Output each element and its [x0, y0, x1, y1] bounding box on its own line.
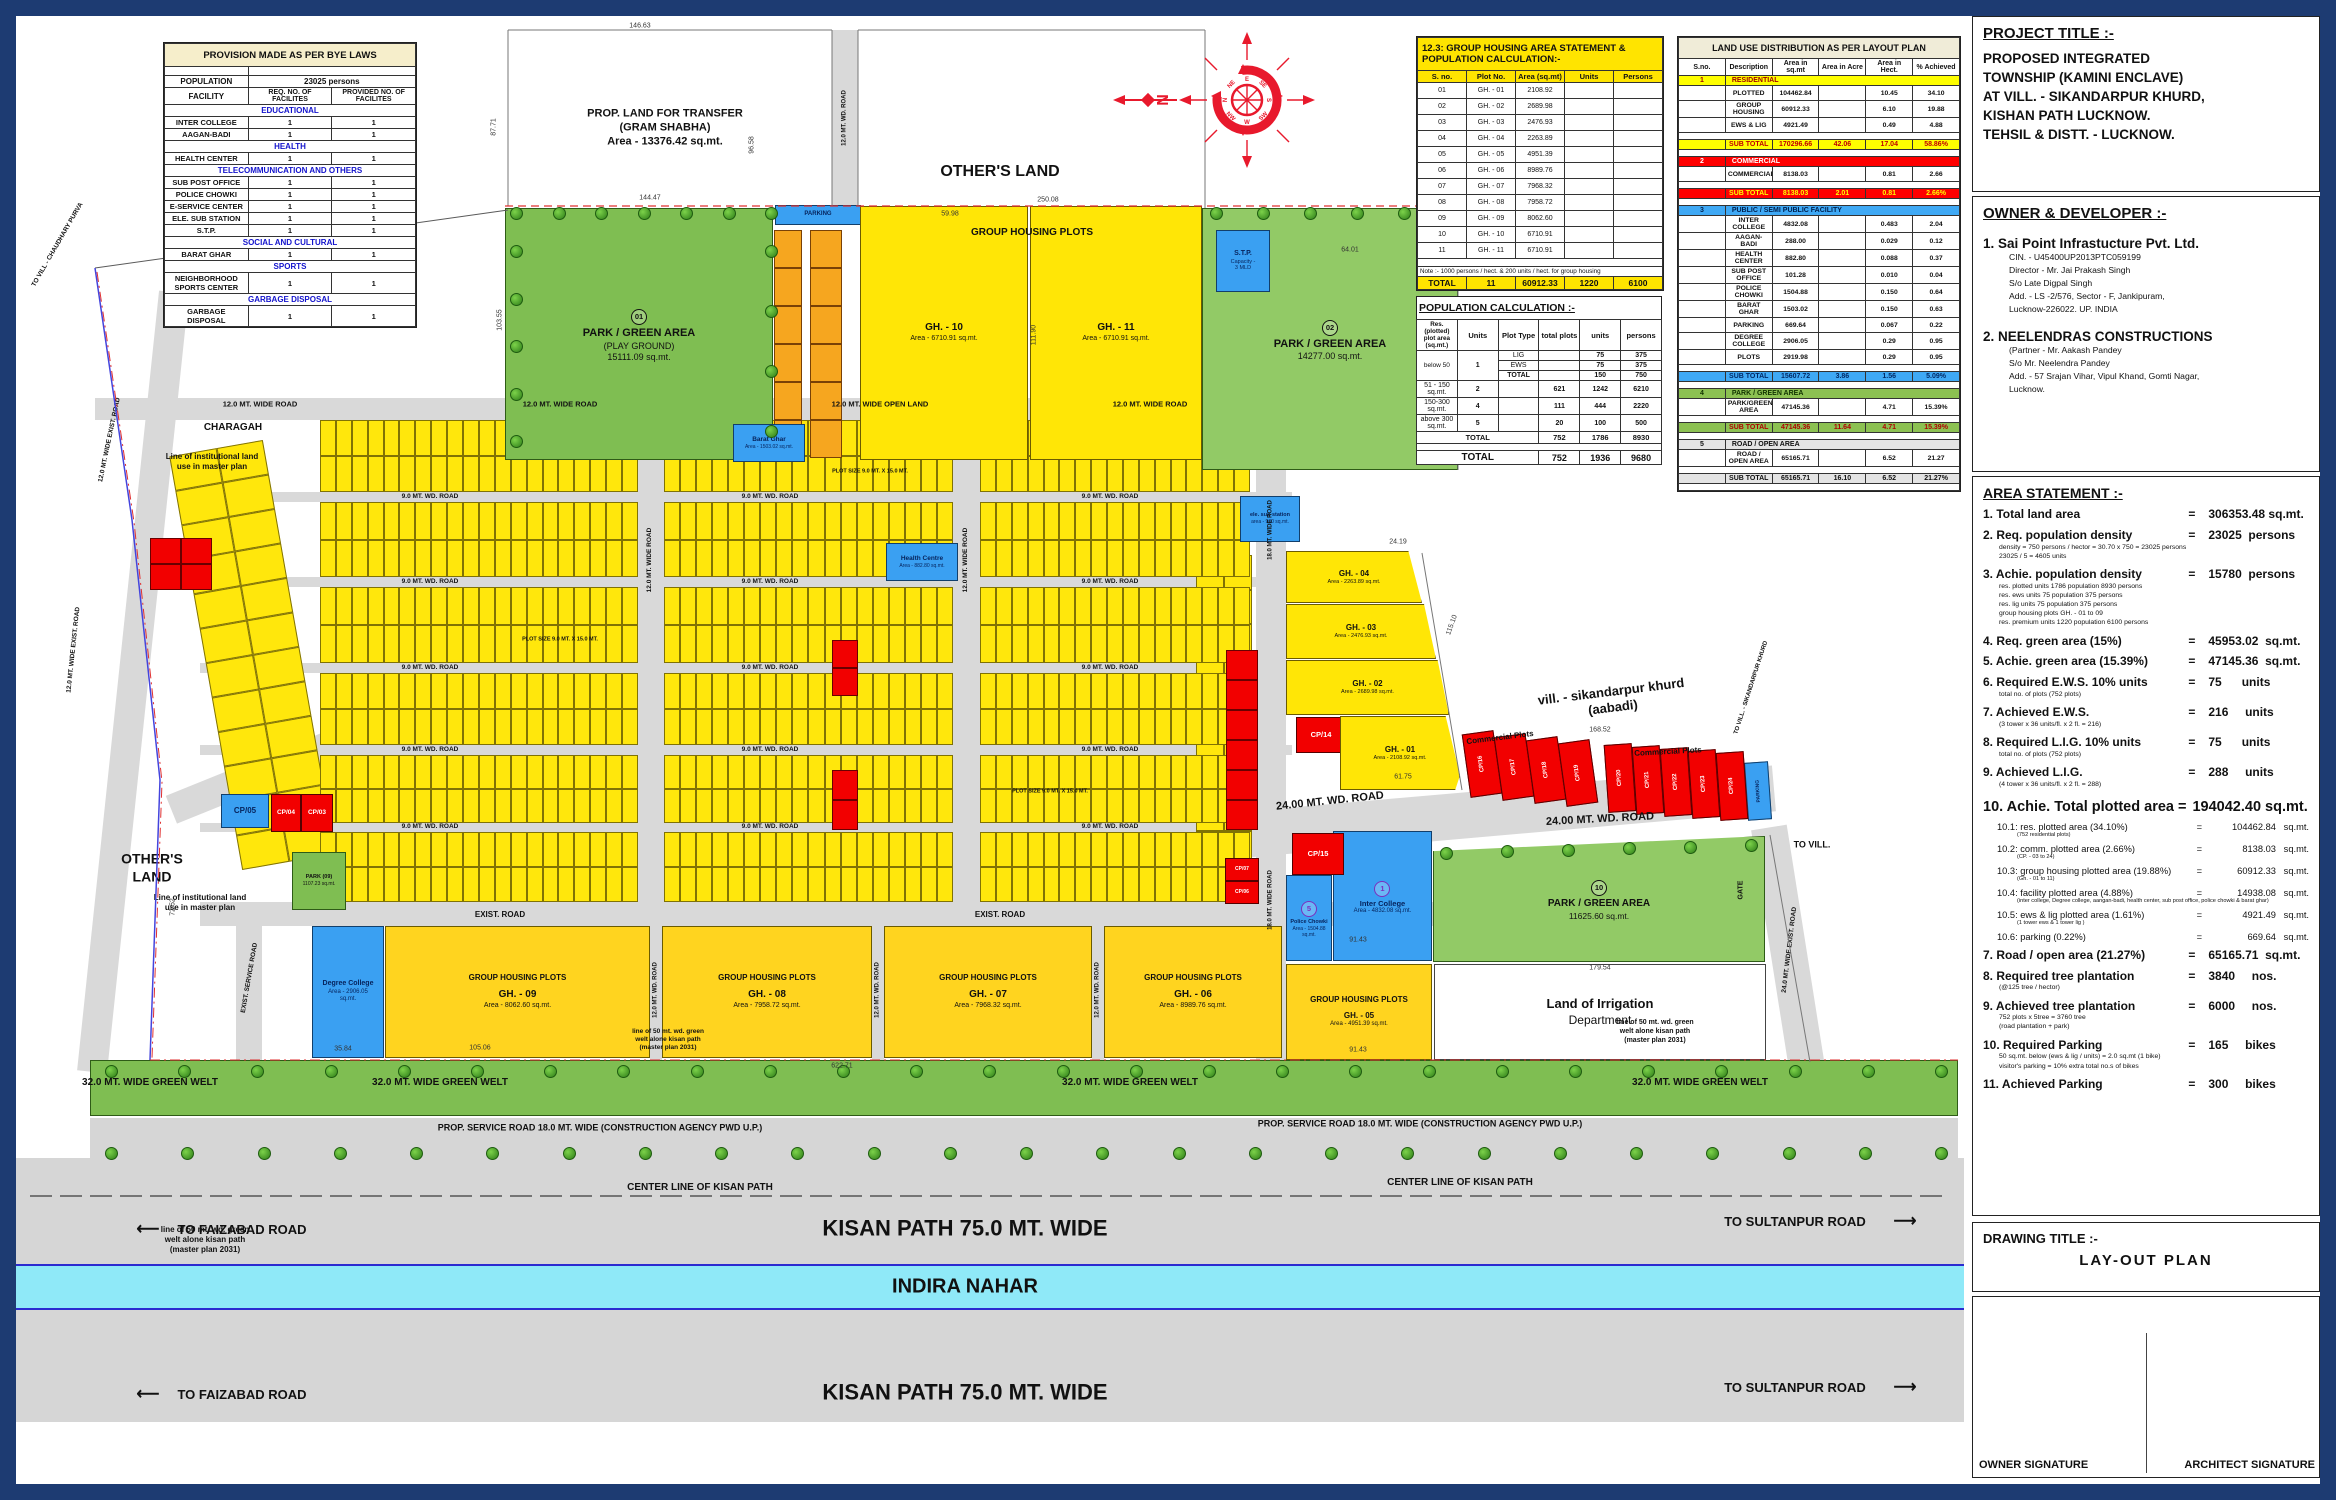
area-item-label: 5. Achie. green area (15.39%) [1983, 655, 2188, 669]
dimension-label: 96.58 [749, 136, 756, 154]
plot-cell [1123, 832, 1139, 867]
table-row: POLICE CHOWKI1504.880.1500.64 [1679, 284, 1960, 301]
owner-signature-label: OWNER SIGNATURE [1979, 1459, 2088, 1471]
tree-icon [334, 1147, 347, 1160]
table-row [1679, 382, 1960, 389]
plot-cell [696, 502, 712, 540]
table-cell: GH. - 09 [1467, 211, 1516, 227]
plot-cell [1012, 502, 1028, 540]
table-cell: 0.150 [1866, 301, 1913, 318]
inter-college: 1Inter CollegeArea - 4832.08 sq.mt. [1333, 831, 1432, 961]
plot-cp05: CP/05 [221, 794, 269, 828]
plot-cell [558, 625, 574, 663]
table-cell [1679, 467, 1960, 474]
area-item-main: 10. Achie. Total plotted area =194042.40… [1983, 799, 2309, 816]
plot-cell [857, 673, 873, 709]
map-label: KISAN PATH 75.0 MT. WIDE [822, 1214, 1107, 1242]
area-sub-eq: = [2197, 910, 2209, 920]
plot-cell [1139, 540, 1155, 578]
table-cell: 150-300 sq.mt. [1417, 398, 1458, 415]
table-row: PARK/GREEN AREA47145.364.7115.39% [1679, 399, 1960, 416]
plot-cell [399, 540, 415, 578]
plot-cell [236, 827, 289, 870]
plot-cell [590, 755, 606, 789]
plot-cell [495, 867, 511, 902]
plot-cell [447, 420, 463, 456]
table-cell: Res. (plotted) plot area (sq.mt.) [1417, 320, 1458, 351]
table-cell: 4 [1457, 398, 1498, 415]
dimension-label: 61.75 [1394, 774, 1412, 781]
table-cell [1614, 211, 1663, 227]
plot-cell [622, 789, 638, 823]
plot-cell [1028, 587, 1044, 625]
map-label: ⟶ [1894, 1212, 1917, 1232]
table-cell: 1 [248, 117, 332, 129]
table-cell: SUB TOTAL [1725, 140, 1772, 150]
map-label: ⟶ [1894, 1378, 1917, 1398]
table-cell [1819, 318, 1866, 333]
plot-cell [352, 420, 368, 456]
table-cell: Description [1725, 59, 1772, 76]
area-sub-main: 10.4: facility plotted area (4.88%)=1493… [1997, 888, 2309, 898]
plot-cell [1044, 540, 1060, 578]
table-cell: COMMERCIAL [1725, 167, 1772, 182]
table-row: 150-300 sq.mt.41114442220 [1417, 398, 1662, 415]
plot-cell [431, 502, 447, 540]
provision-table: PROVISION MADE AS PER BYE LAWSPOPULATION… [163, 42, 417, 328]
plot-cell [431, 540, 447, 578]
plot-cell [447, 673, 463, 709]
plot-cell [728, 867, 744, 902]
table-row: 12.3: GROUP HOUSING AREA STATEMENT & POP… [1418, 38, 1663, 71]
plot-cell [810, 268, 842, 306]
area-item-main: 9. Achieved tree plantation=6000 nos. [1983, 1000, 2309, 1014]
table-cell [1614, 163, 1663, 179]
tree-icon [638, 207, 651, 220]
area-item-main: 7. Achieved E.W.S.=216 units [1983, 706, 2309, 720]
plot-cell [889, 709, 905, 745]
table-row: BARAT GHAR11 [165, 249, 416, 261]
parking-strip: PARKING [775, 205, 861, 225]
block-title: CP/24 [1728, 777, 1737, 794]
plot-cell [1171, 673, 1187, 709]
plot-cell [399, 456, 415, 492]
plot-cell [1091, 502, 1107, 540]
table-row: SUB TOTAL170296.6642.0617.0458.86% [1679, 140, 1960, 150]
plot-cell [463, 709, 479, 745]
map-label: INDIRA NAHAR [892, 1275, 1038, 1300]
plot-cell [825, 709, 841, 745]
plot-cell [415, 456, 431, 492]
table-row: HEALTH CENTER11 [165, 153, 416, 165]
plot-cell [415, 625, 431, 663]
plot-cp14: CP/14 [1296, 717, 1346, 753]
map-label: EXIST. ROAD [975, 910, 1025, 920]
plot-cell [495, 789, 511, 823]
plot-cell [352, 502, 368, 540]
plot-cell [368, 456, 384, 492]
table-row: 1RESIDENTIAL [1679, 76, 1960, 86]
plot-cell [527, 673, 543, 709]
table-cell: 42.06 [1819, 140, 1866, 150]
area-sub-note: (752 residential plots) [2017, 832, 2309, 838]
plot-cell [558, 755, 574, 789]
plot-cell [543, 709, 559, 745]
plot-cell [889, 789, 905, 823]
block-title: GH. - 02 [1341, 679, 1394, 689]
plot-cell [1202, 502, 1218, 540]
dimension-label: 179.54 [1589, 965, 1610, 972]
tree-icon [765, 245, 778, 258]
plot-cell [368, 625, 384, 663]
plot-cell [384, 867, 400, 902]
plot-cp07: CP/07 [1225, 858, 1259, 881]
table-cell: NEIGHBORHOOD SPORTS CENTER [165, 273, 249, 294]
plot-cell [415, 502, 431, 540]
map-block-label: Barat GharArea - 1503.02 sq.mt. [745, 436, 793, 450]
table-cell: 1 [1679, 76, 1726, 86]
plot-cell [368, 540, 384, 578]
plot-cell [1139, 755, 1155, 789]
plot-cell [384, 502, 400, 540]
plot-cell [1202, 587, 1218, 625]
plot-cell [1155, 587, 1171, 625]
table-cell: 1220 [1565, 277, 1614, 290]
plot-cell [996, 755, 1012, 789]
plot-cell [574, 540, 590, 578]
plot-cell [558, 587, 574, 625]
map-label: 32.0 MT. WIDE GREEN WELT [1062, 1077, 1198, 1090]
table-cell: 500 [1621, 415, 1662, 432]
plot-cell [1171, 832, 1187, 867]
plot-cell [1139, 867, 1155, 902]
table-cell: 2108.92 [1516, 83, 1565, 99]
plot-cell [996, 456, 1012, 492]
table-cell: 09 [1418, 211, 1467, 227]
plot-cell [937, 673, 953, 709]
table-cell: 12.3: GROUP HOUSING AREA STATEMENT & POP… [1418, 38, 1663, 71]
gh-10: GH. - 10Area - 6710.91 sq.mt. [860, 206, 1028, 460]
table-cell: SPORTS [165, 261, 416, 273]
plot-cell [696, 709, 712, 745]
area-item-eq: = [2188, 1000, 2202, 1014]
table-cell: 8989.76 [1516, 163, 1565, 179]
plot-cell [680, 625, 696, 663]
plot-cell [1234, 540, 1250, 578]
block-title: CP/20 [1616, 769, 1625, 786]
tree-icon [639, 1147, 652, 1160]
table-cell: Units [1457, 320, 1498, 351]
map-label: Line of institutional land use in master… [166, 452, 258, 472]
plot-cell [384, 789, 400, 823]
gh-03: GH. - 03Area - 2476.93 sq.mt. [1286, 604, 1436, 659]
owner-firm-line: Lucknow-226022. UP. INDIA [2009, 303, 2309, 316]
plot-band [320, 502, 638, 577]
map-label: 9.0 MT. WD. ROAD [742, 664, 799, 672]
map-block-label: CP/06 [1235, 889, 1249, 895]
area-sub-label: 10.3: group housing plotted area (19.88%… [1997, 866, 2197, 876]
table-cell [1819, 284, 1866, 301]
table-cell: 47145.36 [1772, 423, 1819, 433]
table-cell: 17.04 [1866, 140, 1913, 150]
dimension-label: 72.52 [170, 898, 177, 916]
plot-cell [905, 789, 921, 823]
area-item-label: 8. Required L.I.G. 10% units [1983, 736, 2188, 750]
table-cell: 0.22 [1913, 318, 1960, 333]
table-cell: 1 [332, 177, 416, 189]
plot-cell [558, 867, 574, 902]
table-cell: 6710.91 [1516, 227, 1565, 243]
table-row: SUB TOTAL15607.723.861.565.09% [1679, 372, 1960, 382]
area-item-label: 1. Total land area [1983, 508, 2188, 522]
table-cell: FACILITY [165, 88, 249, 105]
area-statement-item: 4. Req. green area (15%)=45953.02 sq.mt. [1983, 635, 2309, 649]
plot-cell [543, 755, 559, 789]
area-item-label: 9. Achieved L.I.G. [1983, 766, 2188, 780]
table-cell: 0.067 [1866, 318, 1913, 333]
area-sub-label: 10.1: res. plotted area (34.10%) [1997, 822, 2197, 832]
table-cell: SOCIAL AND CULTURAL [165, 237, 416, 249]
tree-icon [325, 1065, 338, 1078]
map-label: 12.0 MT. WIDE OPEN LAND [832, 399, 929, 408]
area-sub-value: 60912.33 sq.mt. [2209, 866, 2309, 876]
plot-cell [447, 456, 463, 492]
plot-cell [1226, 650, 1258, 680]
table-cell: COMMERCIAL [1725, 157, 1959, 167]
plot-band [1226, 650, 1258, 830]
table-row: 04GH. - 042263.89 [1418, 131, 1663, 147]
block-title: CP/21 [1644, 771, 1653, 788]
plot-cell [463, 755, 479, 789]
map-label: CENTER LINE OF KISAN PATH [1387, 1177, 1533, 1190]
table-cell: 101.28 [1772, 267, 1819, 284]
table-cell: 8138.03 [1772, 167, 1819, 182]
plot-cell [996, 587, 1012, 625]
plot-cell [1059, 540, 1075, 578]
table-cell [1679, 250, 1726, 267]
dimension-label: 103.55 [497, 309, 504, 330]
plot-cell [857, 502, 873, 540]
map-block-label: GROUP HOUSING PLOTSGH. - 07Area - 7968.3… [939, 973, 1037, 1010]
table-cell: 1 [332, 201, 416, 213]
table-cell: 2.66 [1913, 167, 1960, 182]
table-cell: 1786 [1580, 432, 1621, 444]
area-statement-item: 3. Achie. population density=15780 perso… [1983, 568, 2309, 628]
area-item-main: 8. Required L.I.G. 10% units=75 units [1983, 736, 2309, 750]
plot-cell [1091, 789, 1107, 823]
plot-cell [712, 625, 728, 663]
table-cell: HEALTH [165, 141, 416, 153]
plot-cell [712, 540, 728, 578]
table-cell: 2220 [1621, 398, 1662, 415]
plot-cell [857, 755, 873, 789]
table-cell: GH. - 11 [1467, 243, 1516, 259]
table-cell [1679, 365, 1960, 372]
plot-band [832, 640, 858, 696]
block-title: GH. - 11 [1082, 322, 1149, 335]
table-row [1679, 433, 1960, 440]
block-title: Police Chowki [1290, 919, 1327, 926]
block-subtitle: (PLAY GROUND) [583, 341, 695, 352]
plot-cell [808, 625, 824, 663]
plot-cell [415, 867, 431, 902]
plot-cell [1107, 587, 1123, 625]
plot-cell [889, 832, 905, 867]
area-item-main: 4. Req. green area (15%)=45953.02 sq.mt. [1983, 635, 2309, 649]
plot-cell [495, 540, 511, 578]
block-title: GH. - 08 [718, 989, 816, 1002]
table-cell [1614, 147, 1663, 163]
plot-cell [368, 867, 384, 902]
area-item-value: 23025 persons [2208, 529, 2295, 543]
plot-band [664, 587, 953, 663]
table-cell: 0.483 [1866, 216, 1913, 233]
table-cell: % Achieved [1913, 59, 1960, 76]
plot-cell [495, 456, 511, 492]
tree-icon [1210, 207, 1223, 220]
map-block-label: CP/14 [1311, 730, 1332, 739]
map-label: GROUP HOUSING PLOTS [971, 227, 1093, 240]
plot-cell [543, 540, 559, 578]
table-cell: 03 [1418, 115, 1467, 131]
plot-cell [664, 502, 680, 540]
map-label: PLOT SIZE 9.0 MT. X 15.0 MT. [522, 637, 598, 644]
project-title-line: PROPOSED INTEGRATED [1983, 50, 2309, 69]
plot-cell [857, 587, 873, 625]
map-block-label: CP/24 [1728, 777, 1737, 794]
table-cell: Note :- 1000 persons / hect. & 200 units… [1418, 267, 1663, 277]
plot-cell [511, 625, 527, 663]
map-block-label: CP/17 [1509, 758, 1519, 776]
table-cell: 0.12 [1913, 233, 1960, 250]
map-label: 12.0 MT. WIDE ROAD [223, 399, 298, 408]
table-cell: 6.10 [1866, 101, 1913, 118]
plot-cell [1186, 456, 1202, 492]
plot-cell [463, 789, 479, 823]
plot-cell [712, 832, 728, 867]
park-play-ground: 01PARK / GREEN AREA(PLAY GROUND)15111.09… [505, 208, 773, 460]
plot-cell [352, 867, 368, 902]
table-cell: 4.71 [1866, 399, 1913, 416]
table-cell: 1 [332, 225, 416, 237]
plot-cell [760, 789, 776, 823]
plot-cell [1044, 456, 1060, 492]
block-overtitle: GROUP HOUSING PLOTS [1144, 973, 1242, 983]
table-cell: 11 [1467, 277, 1516, 290]
table-cell: 0.81 [1866, 167, 1913, 182]
dimension-label: 168.52 [1589, 727, 1610, 734]
table-cell [1819, 267, 1866, 284]
table-cell: 4832.08 [1772, 216, 1819, 233]
plot-cell [1091, 709, 1107, 745]
plot-cell [622, 456, 638, 492]
dimension-label: 144.47 [639, 195, 660, 202]
plot-cell [1075, 755, 1091, 789]
map-label: TO VILL. [1794, 839, 1831, 850]
plot-cell [320, 456, 336, 492]
block-title: PARK / GREEN AREA [1548, 898, 1650, 911]
tree-icon [1203, 1065, 1216, 1078]
plot-cell [320, 673, 336, 709]
drawing-title-block: DRAWING TITLE :- LAY-OUT PLAN [1972, 1222, 2320, 1292]
plot-cell [368, 789, 384, 823]
plot-cell [1123, 502, 1139, 540]
table-cell [1498, 398, 1539, 415]
plot-cell [1123, 709, 1139, 745]
map-label: GATE [1738, 881, 1747, 900]
plot-cell [889, 625, 905, 663]
area-sub-label: 10.2: comm. plotted area (2.66%) [1997, 844, 2197, 854]
gh-02: GH. - 02Area - 2689.98 sq.mt. [1286, 660, 1449, 715]
plot-cell [543, 456, 559, 492]
plot-cell [712, 456, 728, 492]
map-label: PROP. SERVICE ROAD 18.0 MT. WIDE (CONSTR… [438, 1122, 763, 1133]
table-cell: 1 [1457, 351, 1498, 381]
plot-cell [776, 502, 792, 540]
plot-cell [1091, 673, 1107, 709]
table-cell: 1 [248, 129, 332, 141]
plot-cell [511, 502, 527, 540]
table-row [1679, 182, 1960, 189]
table-cell: GROUP HOUSING [1725, 101, 1772, 118]
table-row: 11GH. - 116710.91 [1418, 243, 1663, 259]
plot-cell [352, 673, 368, 709]
pop-table-inner: POPULATION CALCULATION :-Res. (plotted) … [1416, 296, 1662, 465]
plot-cell [622, 867, 638, 902]
plot-cell [1059, 709, 1075, 745]
plot-cell [590, 456, 606, 492]
map-label: 9.0 MT. WD. ROAD [402, 493, 459, 501]
table-cell [1679, 233, 1726, 250]
area-sub-value: 14938.08 sq.mt. [2209, 888, 2309, 898]
area-item-note: density = 750 persons / hector = 30.70 x… [1999, 543, 2309, 552]
table-cell [1679, 284, 1726, 301]
table-cell: 21.27% [1913, 474, 1960, 484]
table-row: 01GH. - 012108.92 [1418, 83, 1663, 99]
plot-cell [1123, 673, 1139, 709]
plot-cell [1218, 540, 1234, 578]
area-sub-label: 10.4: facility plotted area (4.88%) [1997, 888, 2197, 898]
table-row: 02GH. - 022689.98 [1418, 99, 1663, 115]
plot-cell [937, 456, 953, 492]
plot-cell [574, 673, 590, 709]
plot-cell [511, 832, 527, 867]
plot-cell [399, 755, 415, 789]
plot-cell [996, 502, 1012, 540]
block-overtitle: GROUP HOUSING PLOTS [1310, 995, 1408, 1005]
plot-cell [511, 456, 527, 492]
map-label: TO SULTANPUR ROAD [1724, 1380, 1866, 1396]
table-cell: 04 [1418, 131, 1467, 147]
plot-cell [996, 673, 1012, 709]
table-cell: Persons [1614, 71, 1663, 83]
plot-cell [1075, 456, 1091, 492]
area-item-note: res. ews units 75 population 375 persons [1999, 591, 2309, 600]
plot-cell [937, 587, 953, 625]
plot-cell [832, 640, 858, 668]
plot-cell [1155, 673, 1171, 709]
plot-cell [1107, 755, 1123, 789]
plot-cell [1155, 709, 1171, 745]
group-housing-table: 12.3: GROUP HOUSING AREA STATEMENT & POP… [1416, 36, 1664, 291]
plot-cell [479, 755, 495, 789]
circled-number: 10 [1591, 880, 1607, 896]
plot-cell [622, 502, 638, 540]
tree-icon [1630, 1147, 1643, 1160]
plot-cell [1226, 740, 1258, 770]
plot-cell [606, 867, 622, 902]
table-cell: GH. - 02 [1467, 99, 1516, 115]
